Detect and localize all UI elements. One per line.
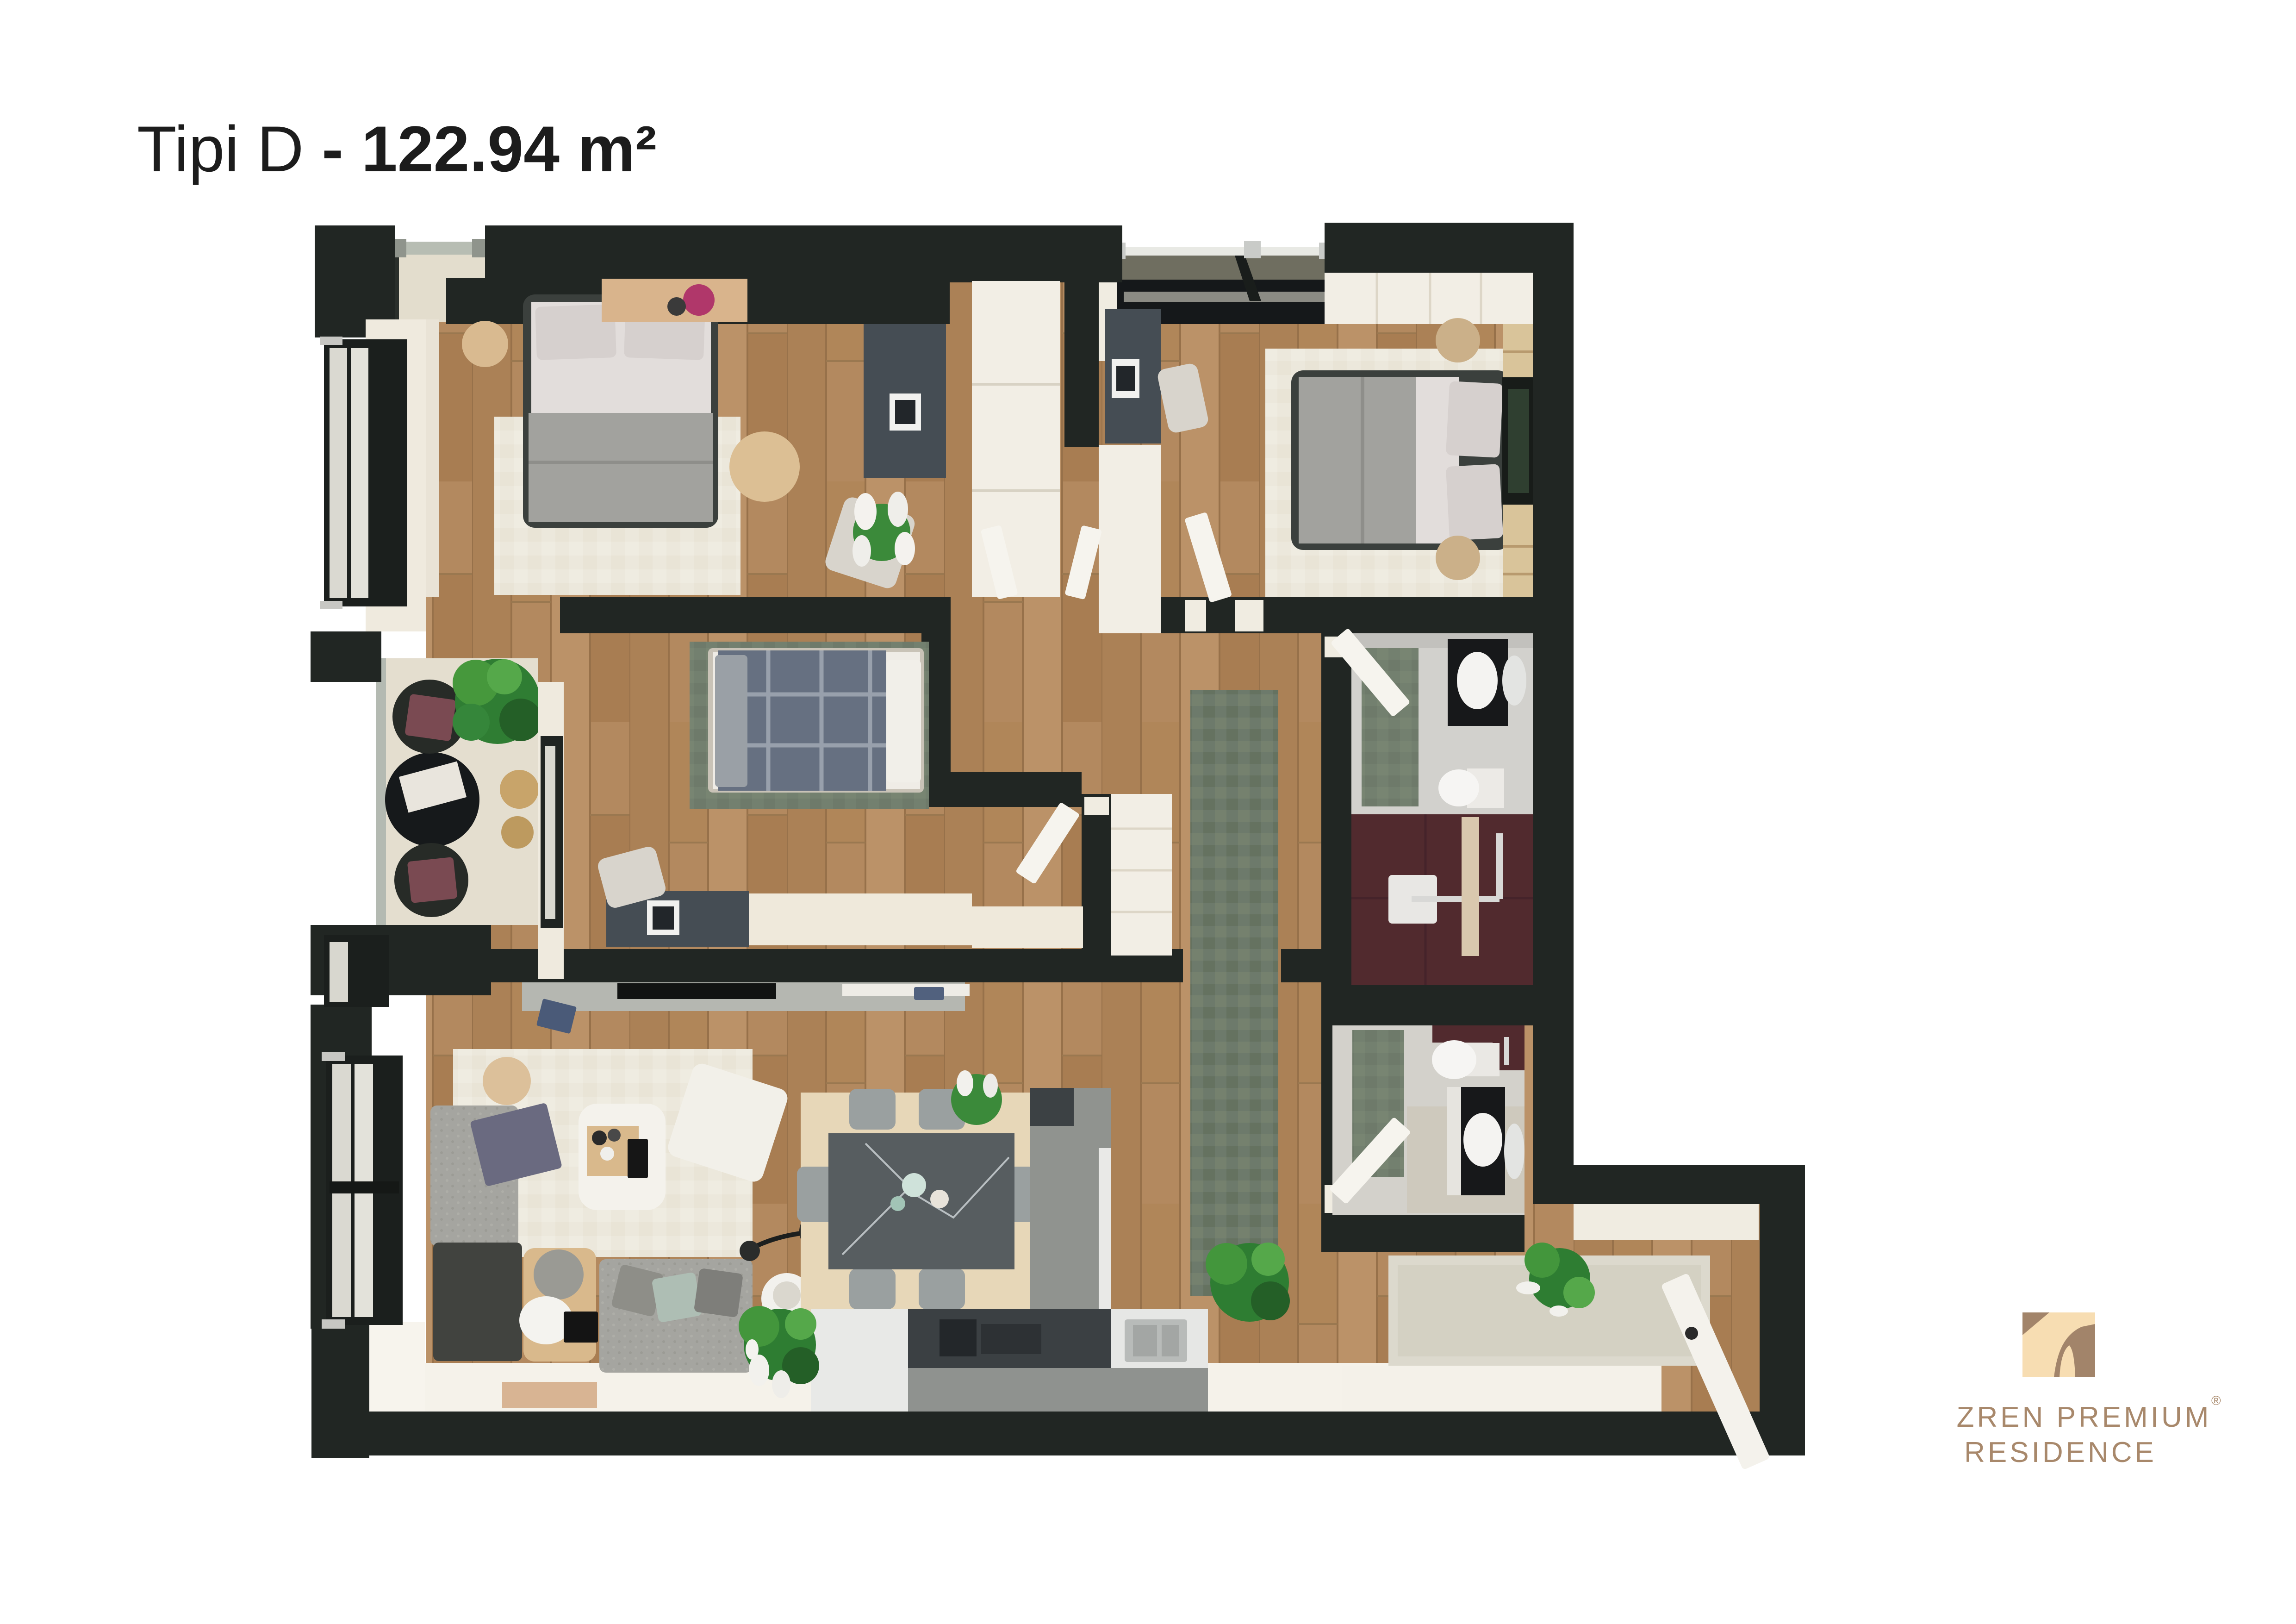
- svg-text:Tipi D - 122.94 m²: Tipi D - 122.94 m²: [137, 112, 657, 185]
- svg-text:®: ®: [2211, 1393, 2221, 1408]
- svg-text:ZREN PREMIUM: ZREN PREMIUM: [1957, 1401, 2212, 1433]
- svg-text:RESIDENCE: RESIDENCE: [1964, 1437, 2157, 1468]
